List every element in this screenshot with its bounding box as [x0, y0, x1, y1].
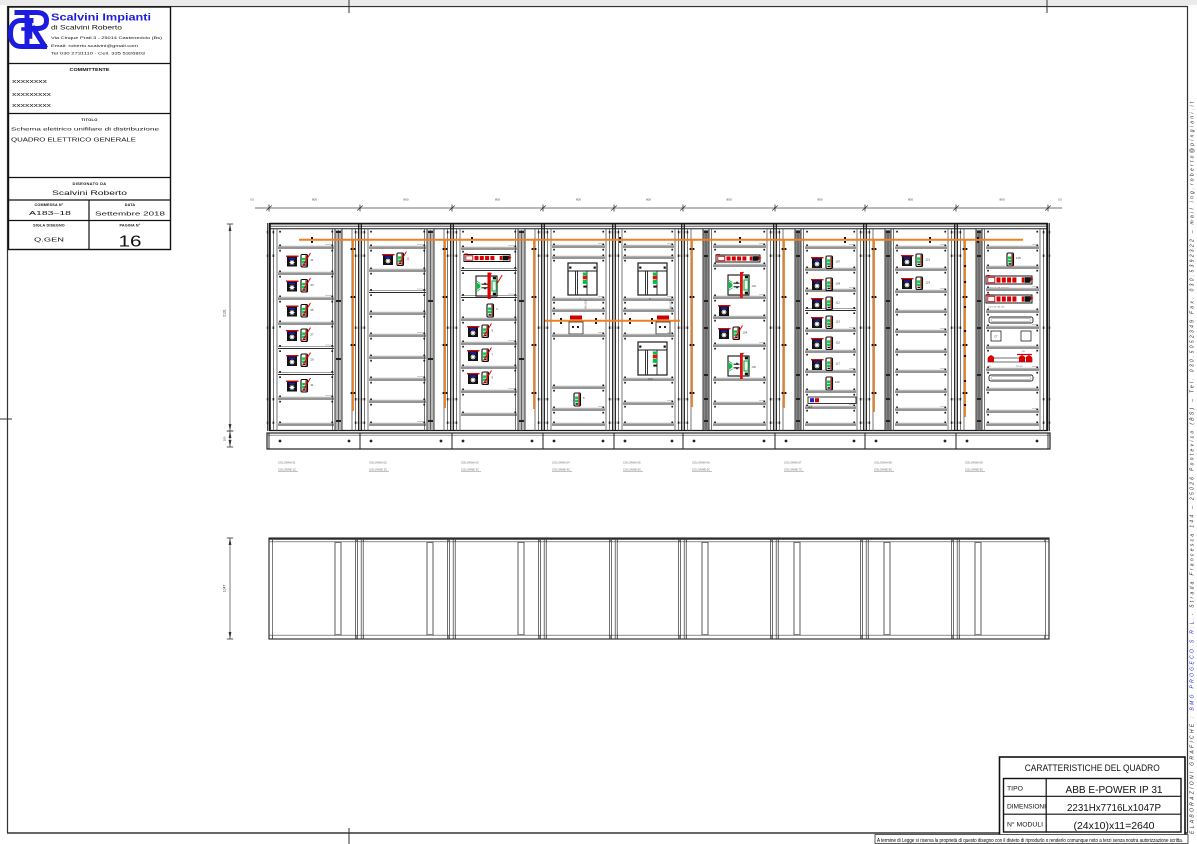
svg-text:COLONNA 03: COLONNA 03: [461, 461, 479, 465]
svg-text:COLONNA 07: COLONNA 07: [784, 461, 802, 465]
svg-text:800: 800: [908, 198, 913, 202]
svg-text:xxxxxxxxx: xxxxxxxxx: [12, 92, 51, 98]
svg-text:104: 104: [743, 331, 748, 335]
svg-text:DATA: DATA: [125, 203, 136, 207]
svg-text:115: 115: [836, 341, 841, 345]
svg-text:xxxxxxxxx: xxxxxxxxx: [12, 103, 51, 109]
svg-text:0.5: 0.5: [1058, 198, 1062, 202]
svg-text:COMMESSA N°: COMMESSA N°: [35, 203, 64, 207]
svg-text:ABB E-POWER IP 31: ABB E-POWER IP 31: [1066, 784, 1163, 796]
svg-text:COLONNA 09: COLONNA 09: [965, 461, 983, 465]
svg-text:CARATTERISTICHE DEL QUADRO: CARATTERISTICHE DEL QUADRO: [1025, 763, 1160, 773]
svg-text:COLONNE 9C: COLONNE 9C: [965, 468, 983, 472]
svg-text:xxxxxxxx: xxxxxxxx: [12, 79, 47, 85]
svg-text:800: 800: [999, 198, 1004, 202]
svg-text:COLONNE 7C: COLONNE 7C: [784, 468, 802, 472]
svg-text:COLONNA 01: COLONNA 01: [278, 461, 296, 465]
svg-text:111: 111: [836, 301, 841, 305]
svg-text:25: 25: [311, 308, 315, 312]
svg-text:COLONNA 04: COLONNA 04: [552, 461, 570, 465]
svg-text:2U: 2U: [1022, 351, 1025, 353]
svg-text:600: 600: [576, 198, 581, 202]
svg-text:QUADRO ELETTRICO GENERALE: QUADRO ELETTRICO GENERALE: [11, 138, 136, 144]
svg-text:119: 119: [808, 406, 812, 409]
svg-text:PAGINA N°: PAGINA N°: [120, 224, 141, 228]
svg-text:COLONNE 6C: COLONNE 6C: [692, 468, 710, 472]
svg-text:125: 125: [1016, 256, 1021, 260]
svg-text:di Scalvini Roberto: di Scalvini Roberto: [51, 26, 123, 32]
svg-text:23: 23: [311, 283, 315, 287]
svg-text:100: 100: [647, 378, 652, 382]
svg-text:21: 21: [311, 258, 315, 262]
svg-text:Scalvini Roberto: Scalvini Roberto: [52, 191, 128, 197]
svg-text:1047: 1047: [223, 585, 227, 593]
svg-text:DISEGNATO DA: DISEGNATO DA: [73, 181, 107, 186]
svg-text:Schema elettrico unifilare: Schema elettrico unifilare di distribuzi…: [11, 127, 160, 133]
svg-text:TITOLO: TITOLO: [81, 117, 97, 122]
svg-text:113: 113: [836, 320, 841, 324]
svg-text:COLONNE 3C: COLONNE 3C: [461, 468, 479, 472]
svg-text:CT: CT: [994, 335, 998, 339]
svg-text:27: 27: [311, 333, 315, 337]
svg-text:117: 117: [836, 362, 841, 366]
svg-text:102: 102: [752, 284, 757, 288]
svg-text:(24x10)x11=2640: (24x10)x11=2640: [1074, 820, 1155, 832]
svg-text:Settembre 2018: Settembre 2018: [95, 212, 165, 218]
svg-text:16: 16: [119, 234, 142, 251]
svg-text:COLONNA 05: COLONNA 05: [623, 461, 641, 465]
svg-text:3WL630: 3WL630: [670, 300, 673, 310]
svg-text:3WL630: 3WL630: [585, 300, 588, 310]
svg-text:800: 800: [495, 198, 500, 202]
svg-text:31: 31: [311, 383, 315, 387]
svg-text:TU 2U: TU 2U: [1016, 366, 1023, 368]
svg-text:106: 106: [752, 365, 757, 369]
svg-text:2131: 2131: [223, 309, 227, 317]
svg-text:A183–18: A183–18: [29, 211, 71, 217]
svg-text:COLONNE 8C: COLONNE 8C: [874, 468, 892, 472]
svg-text:100: 100: [223, 436, 227, 441]
svg-text:COLONNA 08: COLONNA 08: [874, 461, 892, 465]
svg-text:COLONNE 5C: COLONNE 5C: [623, 468, 641, 472]
svg-text:N° MODULI: N° MODULI: [1007, 822, 1043, 829]
svg-text:Email: roberto.scalvini@gmail.: Email: roberto.scalvini@gmail.com: [51, 43, 138, 48]
svg-text:126 127 128 129 131: 126 127 128 129 131: [988, 288, 1009, 290]
svg-text:109: 109: [836, 282, 841, 286]
svg-text:COLONNA 06: COLONNA 06: [692, 461, 710, 465]
svg-text:800: 800: [726, 198, 731, 202]
svg-text:121: 121: [926, 258, 931, 262]
svg-text:COLONNA 02: COLONNA 02: [369, 461, 387, 465]
svg-text:29: 29: [311, 358, 315, 362]
svg-text:Tel 030 2731110 - Cell. 335 5: Tel 030 2731110 - Cell. 335 5326803: [51, 51, 145, 56]
svg-text:ELABORAZIONI GRAFICHE : BMG: ELABORAZIONI GRAFICHE : BMG PROGECO S.R.…: [1190, 99, 1196, 834]
svg-text:COLONNE 4C: COLONNE 4C: [552, 468, 570, 472]
svg-text:0.5: 0.5: [250, 198, 254, 202]
svg-text:800: 800: [403, 198, 408, 202]
svg-text:Q.GEN: Q.GEN: [34, 238, 64, 244]
svg-text:DIMENSIONI: DIMENSIONI: [1007, 804, 1046, 811]
svg-text:COLONNE 1C: COLONNE 1C: [278, 468, 296, 472]
svg-text:2231Hx7716Lx1047P: 2231Hx7716Lx1047P: [1067, 802, 1161, 814]
svg-text:COMMITTENTE: COMMITTENTE: [70, 67, 110, 72]
svg-text:SIGLA DISEGNO: SIGLA DISEGNO: [33, 224, 65, 228]
svg-text:A termine di Legge si riserva: A termine di Legge si riserva la proprie…: [877, 838, 1183, 844]
svg-text:11: 11: [407, 257, 410, 261]
svg-text:126: 126: [835, 380, 840, 384]
svg-text:800: 800: [312, 198, 317, 202]
svg-text:600: 600: [646, 198, 651, 202]
svg-text:Via Cinque Prati 3 - 25014 Cas: Via Cinque Prati 3 - 25014 Castenedolo (…: [51, 35, 163, 40]
svg-text:123: 123: [926, 281, 931, 285]
svg-text:COLONNE 2C: COLONNE 2C: [369, 468, 387, 472]
svg-text:TIPO: TIPO: [1007, 786, 1023, 793]
svg-text:107: 107: [836, 260, 841, 264]
svg-text:800: 800: [817, 198, 822, 202]
svg-text:Scalvini Impianti: Scalvini Impianti: [51, 13, 151, 24]
svg-text:132 133 134 135: 132 133 134 135: [988, 307, 1005, 309]
